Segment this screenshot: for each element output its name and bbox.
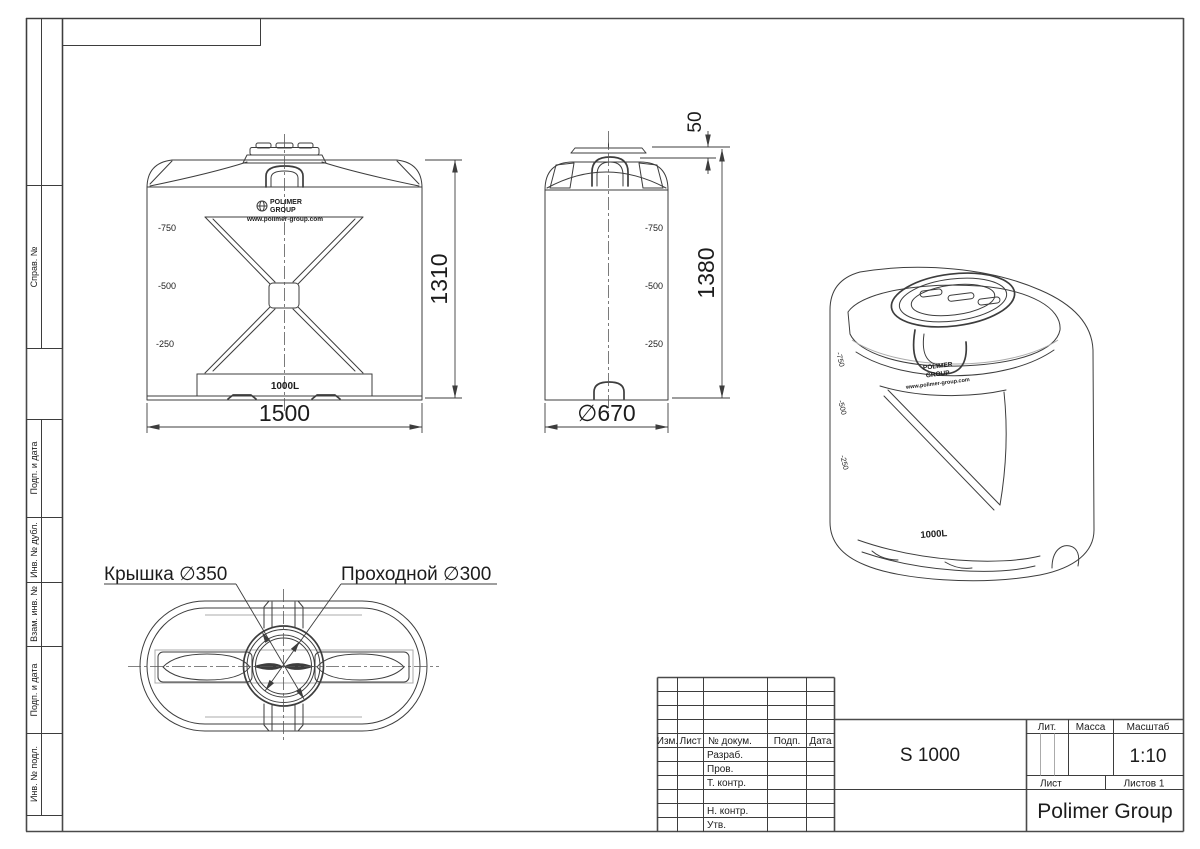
row-razrab: Разраб. [707, 749, 743, 761]
strip-label-podp-data-2: Подп. и дата [29, 663, 39, 716]
side-dim-diameter: ∅670 [545, 400, 668, 433]
top-view: Крышка ∅350 Проходной ∅300 [104, 564, 497, 743]
mass-label: Масса [1076, 722, 1106, 733]
strip-label-vzam-inv: Взам. инв. № [29, 586, 39, 642]
strip-label-sprav: Справ. № [29, 246, 39, 287]
row-nkontr: Н. контр. [707, 806, 748, 817]
front-volume-label: 1000L [271, 381, 299, 392]
front-level-250: -250 [156, 339, 174, 349]
side-dim-height: 1380 [672, 149, 730, 398]
side-bottom-arch [594, 382, 624, 399]
row-prov: Пров. [707, 764, 733, 775]
title-block-right: Лит. Масса Масштаб 1:10 Лист Листов 1 Po… [1037, 721, 1172, 823]
designation: S 1000 [900, 745, 960, 766]
side-spout-arch [592, 157, 628, 186]
pass-callout-text: Проходной ∅300 [341, 564, 491, 585]
corner-stamp-box [63, 19, 261, 46]
drawing-canvas: Справ. № Подп. и дата Инв. № дубл. Взам.… [0, 0, 1200, 849]
front-dim-height: 1310 [425, 160, 462, 398]
iso-level-750: -750 [834, 351, 846, 368]
col-list: Лист [680, 736, 702, 747]
side-view: -750 -500 -250 50 1380 ∅670 [545, 111, 730, 433]
iso-silhouette [830, 267, 1094, 580]
front-logo-line2: GROUP [270, 207, 296, 214]
lid-callout-text: Крышка ∅350 [104, 564, 227, 585]
col-izm: Изм. [657, 736, 678, 747]
iso-base [858, 540, 1079, 571]
side-level-250: -250 [645, 339, 663, 349]
iso-level-250: -250 [838, 454, 850, 471]
front-dim-width: 1500 [147, 400, 422, 433]
title-block: Изм. Лист № докум. Подп. Дата Разраб. Пр… [657, 678, 1184, 832]
side-level-750: -750 [645, 223, 663, 233]
col-doc: № докум. [708, 736, 752, 747]
dim-670-text: ∅670 [577, 400, 635, 426]
row-tkontr: Т. контр. [707, 778, 746, 789]
front-logo-url: www.polimer-group.com [246, 216, 323, 223]
scale-value: 1:10 [1130, 746, 1167, 767]
row-utv: Утв. [707, 820, 726, 831]
top-right-wing [315, 652, 409, 682]
left-margin-strip: Справ. № Подп. и дата Инв. № дубл. Взам.… [27, 19, 63, 816]
iso-level-marks: -750 -500 -250 [834, 351, 850, 471]
strip-label-podp-data-1: Подп. и дата [29, 441, 39, 494]
dim-1380-text: 1380 [693, 247, 719, 298]
dim-50-text: 50 [685, 111, 706, 132]
title-block-headers: Изм. Лист № докум. Подп. Дата [657, 736, 832, 747]
front-view: POLIMER GROUP www.polimer-group.com -750… [147, 134, 462, 433]
front-level-500: -500 [158, 281, 176, 291]
lit-label: Лит. [1038, 722, 1056, 733]
top-left-wing [158, 652, 252, 682]
scale-label: Масштаб [1127, 721, 1170, 733]
strip-label-inv-podl: Инв. № подл. [29, 746, 39, 802]
iso-funnel [880, 386, 1006, 510]
front-level-750: -750 [158, 223, 176, 233]
iso-volume-label: 1000L [920, 528, 948, 541]
front-logo-line1: POLIMER [270, 199, 302, 206]
iso-level-500: -500 [836, 399, 848, 416]
iso-view: POLIMER GROUP www.polimer-group.com -750… [830, 267, 1094, 581]
drawing-sheet: Справ. № Подп. и дата Инв. № дубл. Взам.… [0, 0, 1200, 849]
sheets-label: Листов 1 [1124, 779, 1165, 790]
iso-logo-url: www.polimer-group.com [905, 377, 971, 391]
side-level-marks: -750 -500 -250 [645, 223, 663, 349]
front-logo: POLIMER GROUP www.polimer-group.com [246, 199, 323, 223]
side-level-500: -500 [645, 281, 663, 291]
front-level-marks: -750 -500 -250 [156, 223, 176, 349]
sheet-label: Лист [1040, 779, 1062, 790]
strip-label-inv-dubl: Инв. № дубл. [29, 522, 39, 578]
dim-1500-text: 1500 [259, 400, 310, 426]
col-date: Дата [809, 736, 832, 747]
company-name: Polimer Group [1037, 800, 1172, 823]
dim-1310-text: 1310 [426, 253, 452, 304]
col-sign: Подп. [774, 736, 801, 747]
